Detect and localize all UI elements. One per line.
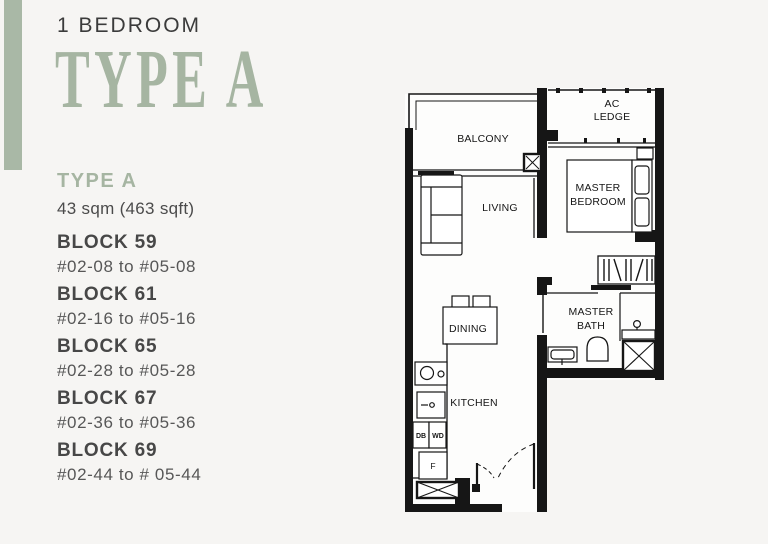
wardrobe-door-track — [591, 285, 631, 290]
room-label-master-bedroom: BEDROOM — [570, 196, 626, 208]
wd-label: WD — [432, 433, 444, 440]
vanity-sink — [548, 347, 577, 365]
sofa — [421, 175, 462, 255]
room-label-master-bedroom: MASTER — [576, 182, 621, 194]
cooker — [417, 392, 445, 418]
room-label-dining: DINING — [449, 323, 487, 335]
room-label-living: LIVING — [482, 202, 518, 214]
room-label-kitchen: KITCHEN — [450, 397, 498, 409]
ac-unit-box — [524, 154, 541, 171]
room-label-master-bath: BATH — [577, 320, 605, 332]
room-label-master-bath: MASTER — [569, 306, 614, 318]
entrance-ledge-box — [417, 482, 459, 498]
db-label: DB — [416, 433, 426, 440]
room-label-balcony: BALCONY — [457, 133, 509, 145]
floorplan: BALCONY AC LEDGE MASTER BEDROOM LIVING D… — [0, 0, 768, 544]
toilet — [587, 337, 608, 361]
shaft-box — [623, 341, 655, 371]
room-label-ac-ledge: LEDGE — [594, 111, 631, 123]
kitchen-sink — [415, 362, 447, 385]
room-label-ac-ledge: AC — [605, 98, 620, 110]
fridge-label: F — [430, 461, 435, 471]
